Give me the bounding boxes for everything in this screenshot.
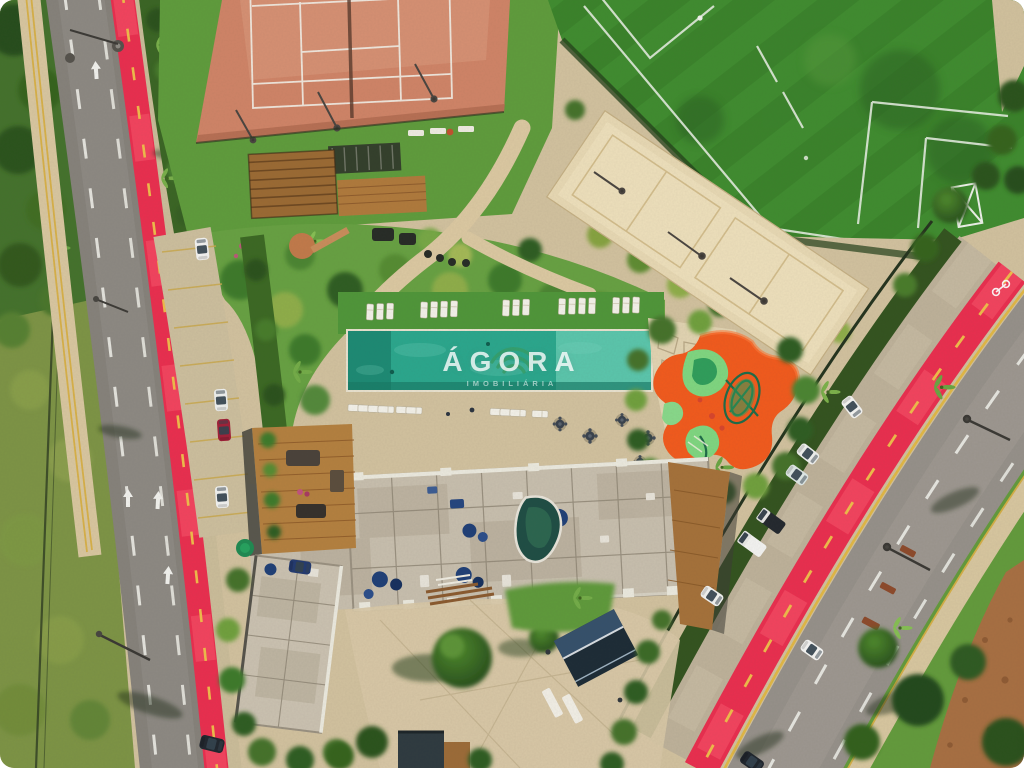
photo-grain <box>0 0 1024 768</box>
aerial-photo-canvas <box>0 0 1024 768</box>
aerial-photo: ÁGORA IMOBILIÁRIA <box>0 0 1024 768</box>
